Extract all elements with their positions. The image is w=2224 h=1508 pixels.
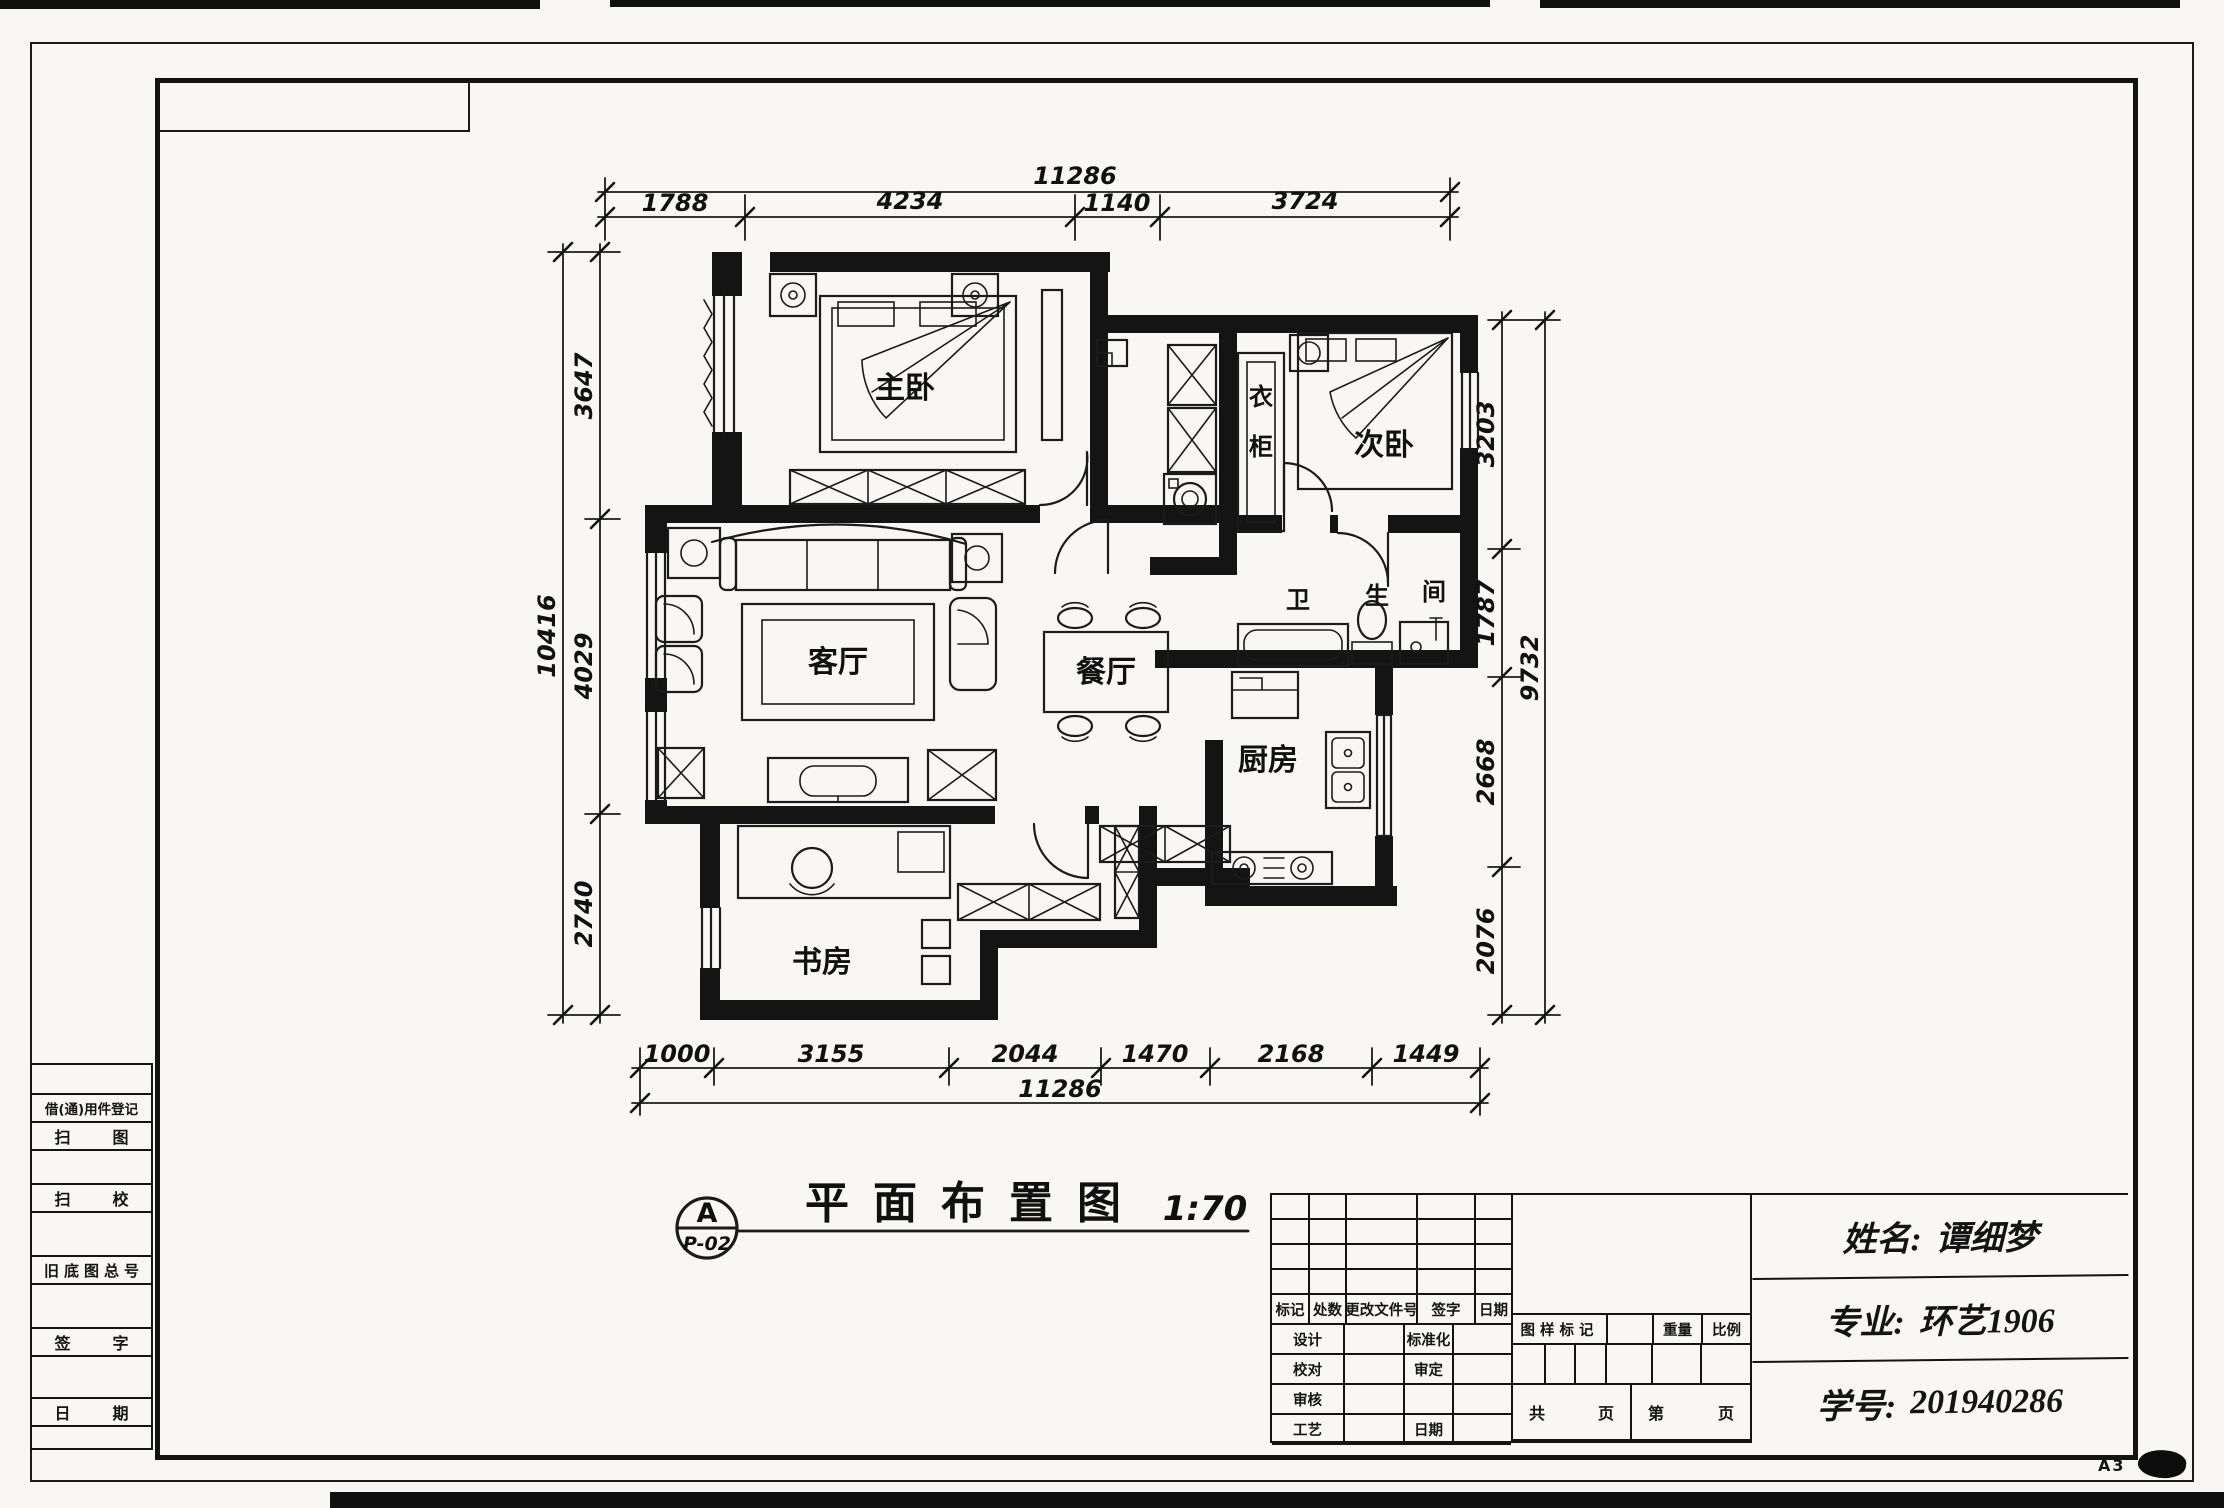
study-door-icon (1034, 824, 1088, 878)
empty-cell (1476, 1220, 1511, 1245)
empty-cell (1546, 1345, 1576, 1385)
closet-door-icon (1055, 520, 1108, 573)
index-label: 第 (1648, 1400, 1664, 1424)
header-date: 日期 (1476, 1295, 1511, 1325)
dim-top-overall: 11286 (1033, 162, 1117, 190)
row-craft: 工艺 (1272, 1415, 1345, 1445)
dim-top-seg1: 4234 (876, 187, 944, 215)
empty-cell (1653, 1345, 1702, 1385)
registration-strip: 借(通)用件登记 扫图 扫校 旧底图总号 签字 日期 (30, 1063, 153, 1450)
dim-bot-seg4: 2168 (1258, 1040, 1325, 1068)
reg-scan-image-text: 扫图 (54, 1124, 170, 1148)
room-label-bath-3: 间 (1422, 578, 1446, 606)
info-major-value: 环艺1906 (1918, 1293, 2055, 1343)
empty-cell (1476, 1270, 1511, 1295)
room-label-bath-2: 生 (1365, 582, 1389, 610)
bathroom-door-icon (1338, 533, 1388, 586)
reg-scan-check-text: 扫校 (54, 1186, 170, 1210)
drawing-sheet: 主卧 次卧 衣 柜 客厅 餐厅 厨房 书房 卫 生 间 11286 1788 4… (0, 0, 2224, 1508)
empty-cell (32, 1065, 151, 1095)
index-unit: 页 (1718, 1400, 1734, 1424)
sheet-size-label: A3 (2098, 1456, 2126, 1475)
info-id-label: 学号: (1817, 1378, 1897, 1428)
empty-cell (1418, 1220, 1476, 1245)
total-label: 共 (1529, 1400, 1545, 1424)
titleblock-mark-table: 图样标记 重量 比例 共 页 第 页 (1513, 1193, 1752, 1443)
master-bay-window-icon (704, 296, 734, 432)
empty-cell (1310, 1245, 1347, 1270)
reg-scan-image-label: 扫图 (32, 1123, 151, 1151)
empty-cell (1347, 1270, 1418, 1295)
weight-label: 重量 (1654, 1315, 1703, 1345)
dimension-left: 3647 4029 2740 10416 (533, 243, 620, 1024)
living-window-2-icon (647, 712, 665, 800)
title-ref-code: P-02 (683, 1233, 731, 1255)
room-label-dining: 餐厅 (1076, 655, 1136, 690)
empty-cell (1345, 1325, 1405, 1355)
empty-cell (32, 1357, 151, 1399)
header-mark: 标记 (1272, 1295, 1310, 1325)
empty-cell (1272, 1195, 1310, 1220)
empty-cell (1310, 1270, 1347, 1295)
dim-bot-seg1: 3155 (798, 1040, 865, 1068)
row-standardize: 标准化 (1405, 1325, 1454, 1355)
dim-left-seg0: 3647 (570, 352, 598, 419)
drawing-title: A P-02 平面布置图 1:70 (677, 1178, 1248, 1258)
reg-date-label: 日期 (32, 1399, 151, 1427)
reg-date-text: 日期 (54, 1400, 170, 1424)
row-date: 日期 (1405, 1415, 1454, 1445)
title-ref-letter: A (697, 1198, 718, 1229)
room-label-study: 书房 (792, 945, 852, 980)
dim-right-seg2: 2668 (1472, 739, 1500, 806)
titleblock-revision-table: 标记 处数 更改文件号 签字 日期 设计 标准化 校对 审定 审核 工艺 日期 (1270, 1193, 1513, 1443)
dim-top-seg2: 1140 (1084, 189, 1151, 217)
empty-cell (1418, 1270, 1476, 1295)
reg-borrow-text: 借(通)用件登记 (45, 1098, 138, 1118)
empty-cell (1702, 1345, 1750, 1385)
master-door-icon (1040, 452, 1087, 505)
empty-cell (1454, 1385, 1511, 1415)
room-label-master: 主卧 (875, 371, 935, 406)
room-label-second: 次卧 (1354, 428, 1414, 463)
room-label-wardrobe-1: 衣 (1249, 383, 1273, 411)
empty-cell (32, 1285, 151, 1329)
empty-cell (1405, 1385, 1454, 1415)
empty-cell (1418, 1195, 1476, 1220)
row-proofread: 校对 (1272, 1355, 1345, 1385)
empty-cell (1513, 1195, 1750, 1315)
info-major-row: 专业: 环艺1906 (1752, 1276, 2129, 1363)
dimension-right: 3203 1787 2668 2076 9732 (1472, 311, 1560, 1024)
dim-right-seg3: 2076 (1472, 908, 1500, 975)
empty-cell (1347, 1195, 1418, 1220)
dim-left-seg1: 4029 (570, 633, 598, 701)
room-label-wardrobe-2: 柜 (1249, 433, 1273, 461)
header-count: 处数 (1310, 1295, 1347, 1325)
row-review: 审核 (1272, 1385, 1345, 1415)
title-text: 平面布置图 (805, 1178, 1145, 1229)
dim-right-seg1: 1787 (1472, 579, 1500, 646)
dim-bot-seg2: 2044 (992, 1040, 1059, 1068)
empty-cell (1272, 1245, 1310, 1270)
dim-bot-seg0: 1000 (644, 1040, 711, 1068)
dim-right-overall: 9732 (1516, 635, 1544, 702)
reg-borrow-label: 借(通)用件登记 (32, 1095, 151, 1123)
second-bedroom-furniture (1238, 333, 1452, 531)
empty-cell (1476, 1195, 1511, 1220)
dim-bot-seg5: 1449 (1393, 1040, 1460, 1068)
dim-bot-overall: 11286 (1018, 1075, 1102, 1103)
sample-mark-label: 图样标记 (1513, 1315, 1608, 1345)
kitchen-sliding-door-icon (1377, 715, 1391, 836)
ratio-label: 比例 (1703, 1315, 1750, 1345)
dim-left-seg2: 2740 (570, 881, 598, 948)
info-name-value: 谭细梦 (1935, 1210, 2038, 1260)
empty-cell (1418, 1245, 1476, 1270)
empty-cell (32, 1427, 151, 1448)
total-unit: 页 (1598, 1400, 1614, 1424)
dim-top-seg0: 1788 (642, 189, 709, 217)
info-major-label: 专业: (1825, 1295, 1905, 1345)
empty-cell (1608, 1315, 1654, 1345)
empty-cell (1454, 1355, 1511, 1385)
empty-cell (1345, 1415, 1405, 1445)
title-scale: 1:70 (1163, 1189, 1248, 1229)
dim-top-seg3: 3724 (1272, 187, 1339, 215)
empty-cell (1347, 1220, 1418, 1245)
empty-cell (1310, 1195, 1347, 1220)
reg-signature-text: 签字 (54, 1330, 170, 1354)
info-name-row: 姓名: 谭细梦 (1752, 1193, 2129, 1280)
reg-scan-check-label: 扫校 (32, 1185, 151, 1213)
room-label-living: 客厅 (808, 645, 868, 680)
empty-cell (1576, 1345, 1607, 1385)
empty-cell (1454, 1325, 1511, 1355)
study-window-icon (702, 908, 720, 968)
empty-cell (1347, 1245, 1418, 1270)
empty-cell (1345, 1355, 1405, 1385)
empty-cell (32, 1151, 151, 1185)
empty-cell (1272, 1220, 1310, 1245)
reg-old-negative-text: 旧底图总号 (44, 1260, 144, 1281)
reg-old-negative-label: 旧底图总号 (32, 1257, 151, 1285)
dim-left-overall: 10416 (533, 594, 561, 678)
row-design: 设计 (1272, 1325, 1345, 1355)
student-info-block: 姓名: 谭细梦 专业: 环艺1906 学号: 201940286 (1752, 1193, 2128, 1443)
room-label-bath-1: 卫 (1286, 586, 1310, 614)
reg-signature-label: 签字 (32, 1329, 151, 1357)
empty-cell (1476, 1245, 1511, 1270)
closet-room-furniture (1097, 340, 1216, 524)
dimension-top: 11286 1788 4234 1140 3724 (596, 162, 1459, 240)
empty-cell (1310, 1220, 1347, 1245)
empty-cell (1454, 1415, 1511, 1445)
kitchen-fixtures (1212, 672, 1370, 884)
row-approve: 审定 (1405, 1355, 1454, 1385)
dim-right-seg0: 3203 (1472, 401, 1500, 468)
page-number-cell: 第 页 (1632, 1385, 1750, 1441)
info-id-value: 201940286 (1910, 1382, 2063, 1422)
header-change-doc: 更改文件号 (1347, 1295, 1418, 1325)
info-id-row: 学号: 201940286 (1752, 1360, 2129, 1445)
empty-cell (1345, 1385, 1405, 1415)
empty-cell (1272, 1270, 1310, 1295)
dim-bot-seg3: 1470 (1122, 1040, 1189, 1068)
empty-cell (1607, 1345, 1653, 1385)
dimension-bottom: 1000 3155 2044 1470 2168 1449 11286 (631, 1040, 1489, 1115)
info-name-label: 姓名: (1842, 1211, 1922, 1261)
empty-cell (1513, 1345, 1546, 1385)
empty-cell (32, 1213, 151, 1257)
header-sign: 签字 (1418, 1295, 1476, 1325)
total-pages-cell: 共 页 (1513, 1385, 1632, 1441)
room-label-kitchen: 厨房 (1238, 743, 1298, 778)
